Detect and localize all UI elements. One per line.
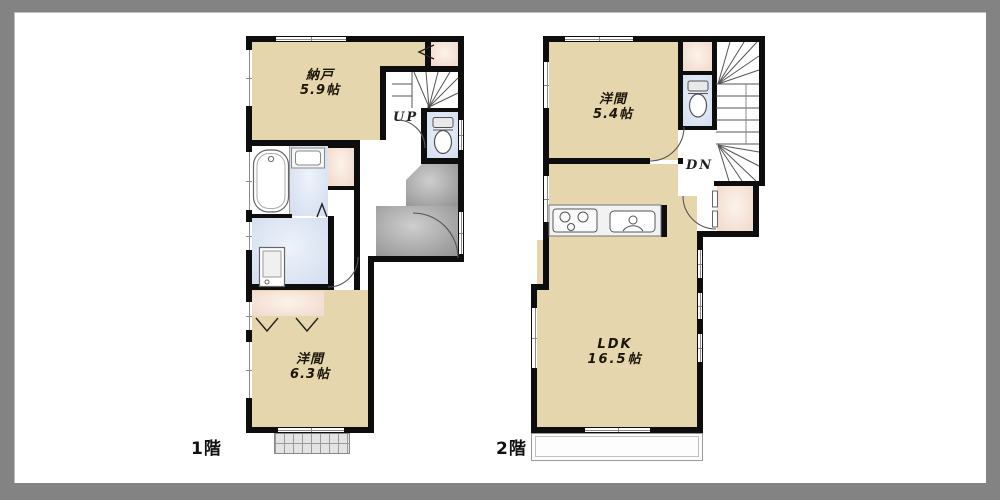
stairs-2f bbox=[716, 42, 759, 181]
wall bbox=[425, 42, 431, 66]
washroom-lower-1f bbox=[252, 218, 328, 284]
label-room-ldk-2f: LDK 16.5帖 bbox=[565, 337, 665, 368]
window bbox=[246, 152, 252, 210]
room-storage-1f-ext bbox=[386, 42, 425, 66]
label-stairs-dn: DN bbox=[686, 158, 713, 173]
wall bbox=[678, 158, 683, 164]
entry-genkan-lower bbox=[376, 206, 458, 256]
window bbox=[459, 120, 463, 150]
label-room-western-1f: 洋間 6.3帖 bbox=[260, 352, 360, 383]
wall bbox=[368, 256, 374, 433]
closet-2f-top-right bbox=[683, 42, 712, 71]
label-floor-2: 2階 bbox=[496, 434, 527, 459]
room-name: LDK bbox=[597, 337, 632, 352]
wall bbox=[697, 231, 759, 237]
wall bbox=[386, 66, 458, 72]
window bbox=[246, 222, 252, 250]
room-ldk-2f bbox=[537, 240, 697, 427]
room-size: 6.3帖 bbox=[290, 367, 330, 382]
balcony-2f-inner-line bbox=[535, 436, 699, 457]
stairs-1f bbox=[392, 72, 458, 108]
window bbox=[698, 293, 702, 319]
window bbox=[698, 334, 702, 362]
window bbox=[698, 250, 702, 278]
kitchen-area-2f bbox=[549, 164, 678, 240]
wall bbox=[759, 36, 765, 186]
balcony-1f bbox=[274, 433, 350, 454]
balcony-2f bbox=[531, 433, 703, 461]
bath-partition bbox=[289, 146, 290, 216]
window bbox=[278, 428, 344, 432]
window bbox=[246, 50, 252, 106]
window bbox=[532, 308, 537, 368]
wall bbox=[678, 71, 716, 75]
window bbox=[246, 302, 252, 330]
closet-1f-mid bbox=[328, 146, 354, 186]
wall bbox=[380, 66, 386, 140]
wall bbox=[421, 158, 458, 164]
window bbox=[246, 342, 252, 398]
room-name: 納戸 bbox=[306, 68, 334, 83]
wall bbox=[328, 144, 354, 148]
wall bbox=[543, 158, 650, 164]
room-size: 16.5帖 bbox=[587, 352, 642, 367]
wall bbox=[753, 181, 759, 237]
toilet-room-1f bbox=[427, 112, 458, 158]
wall bbox=[328, 186, 354, 190]
wall bbox=[370, 256, 464, 262]
wall bbox=[246, 284, 330, 290]
floorplan-image: 納戸 5.9帖 UP 洋間 6.3帖 1階 洋間 5.4帖 DN LDK 16.… bbox=[0, 0, 1000, 500]
room-name: 洋間 bbox=[599, 92, 627, 107]
label-floor-1: 1階 bbox=[191, 434, 222, 459]
wall bbox=[678, 36, 683, 128]
closet-1f-top-right bbox=[431, 42, 458, 66]
washroom-upper-1f bbox=[290, 146, 328, 216]
wall bbox=[421, 108, 427, 164]
window bbox=[544, 62, 549, 108]
closet-1f-western bbox=[252, 291, 324, 316]
wall bbox=[246, 214, 292, 218]
kitchen-area-2f-ext bbox=[678, 196, 697, 240]
window bbox=[544, 176, 549, 222]
room-size: 5.4帖 bbox=[593, 107, 633, 122]
room-size: 5.9帖 bbox=[300, 83, 340, 98]
closet-2f-right bbox=[717, 186, 753, 231]
wall bbox=[661, 205, 667, 237]
window bbox=[565, 37, 633, 41]
label-room-western-2f: 洋間 5.4帖 bbox=[563, 92, 663, 123]
window bbox=[585, 428, 650, 432]
wall bbox=[712, 42, 717, 130]
label-room-storage-1f: 納戸 5.9帖 bbox=[270, 68, 370, 99]
label-stairs-up: UP bbox=[393, 110, 418, 125]
plan-panel bbox=[14, 12, 986, 483]
toilet-room-2f bbox=[683, 75, 712, 126]
wall bbox=[354, 146, 360, 290]
wall bbox=[328, 216, 334, 290]
wall bbox=[678, 126, 716, 130]
window bbox=[276, 37, 346, 41]
room-name: 洋間 bbox=[296, 352, 324, 367]
entry-door-opening bbox=[459, 212, 463, 254]
